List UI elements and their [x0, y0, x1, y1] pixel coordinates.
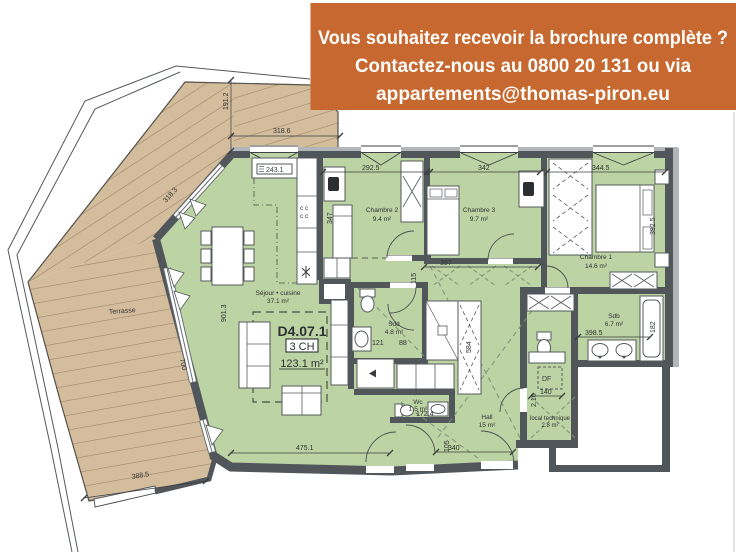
svg-text:14.6 m²: 14.6 m²: [585, 263, 608, 270]
svg-text:121: 121: [372, 340, 384, 347]
svg-text:37.1 m²: 37.1 m²: [267, 298, 290, 305]
svg-text:191.2: 191.2: [223, 92, 230, 110]
svg-text:1.5 m²: 1.5 m²: [409, 406, 428, 413]
svg-text:Wc: Wc: [413, 399, 423, 406]
svg-text:15 m²: 15 m²: [479, 422, 496, 429]
svg-text:4.8 m²: 4.8 m²: [385, 329, 404, 336]
svg-text:9.4 m²: 9.4 m²: [373, 216, 392, 223]
svg-text:appartements@thomas-piron.eu: appartements@thomas-piron.eu: [376, 84, 670, 105]
svg-text:342: 342: [478, 165, 490, 172]
svg-text:243.1: 243.1: [266, 167, 284, 174]
svg-text:3 CH: 3 CH: [289, 341, 314, 353]
svg-text:c c: c c: [300, 213, 309, 220]
svg-text:398.5: 398.5: [585, 330, 603, 337]
svg-text:D4.07.1: D4.07.1: [277, 323, 326, 339]
svg-text:Chambre 3: Chambre 3: [463, 207, 496, 214]
svg-text:Chambre 2: Chambre 2: [366, 207, 399, 214]
svg-text:Séjour • cuisine: Séjour • cuisine: [256, 290, 301, 297]
svg-text:Sdd: Sdd: [388, 321, 400, 328]
svg-text:318.6: 318.6: [273, 128, 291, 135]
svg-text:DF: DF: [542, 376, 551, 383]
svg-text:397: 397: [440, 260, 452, 267]
svg-text:Sdb: Sdb: [608, 313, 620, 320]
svg-text:140: 140: [540, 389, 552, 396]
svg-text:105: 105: [444, 440, 451, 452]
svg-text:local technique: local technique: [530, 416, 571, 422]
svg-text:344.5: 344.5: [592, 165, 610, 172]
svg-text:2.8 m²: 2.8 m²: [541, 423, 558, 429]
svg-text:182: 182: [650, 321, 657, 333]
svg-text:Contactez-nous au 0800 20 131: Contactez-nous au 0800 20 131 ou via: [355, 56, 691, 77]
svg-text:c c: c c: [300, 205, 309, 212]
svg-text:6.7 m²: 6.7 m²: [605, 321, 624, 328]
svg-text:475.1: 475.1: [296, 445, 314, 452]
svg-text:392.5: 392.5: [650, 217, 657, 235]
svg-text:123.1 m²: 123.1 m²: [280, 358, 324, 370]
svg-text:Vous souhaitez recevoir la bro: Vous souhaitez recevoir la brochure comp…: [318, 28, 728, 49]
svg-text:347: 347: [327, 212, 334, 224]
svg-text:Chambre 1: Chambre 1: [580, 254, 613, 261]
svg-text:88: 88: [399, 340, 407, 347]
svg-text:2.10: 2.10: [531, 393, 538, 407]
svg-text:9.7 m²: 9.7 m²: [470, 216, 489, 223]
svg-text:Hall: Hall: [481, 414, 493, 421]
svg-text:901.3: 901.3: [221, 304, 228, 322]
svg-text:115: 115: [411, 273, 418, 284]
svg-text:584: 584: [466, 341, 473, 353]
svg-text:292.5: 292.5: [362, 165, 380, 172]
